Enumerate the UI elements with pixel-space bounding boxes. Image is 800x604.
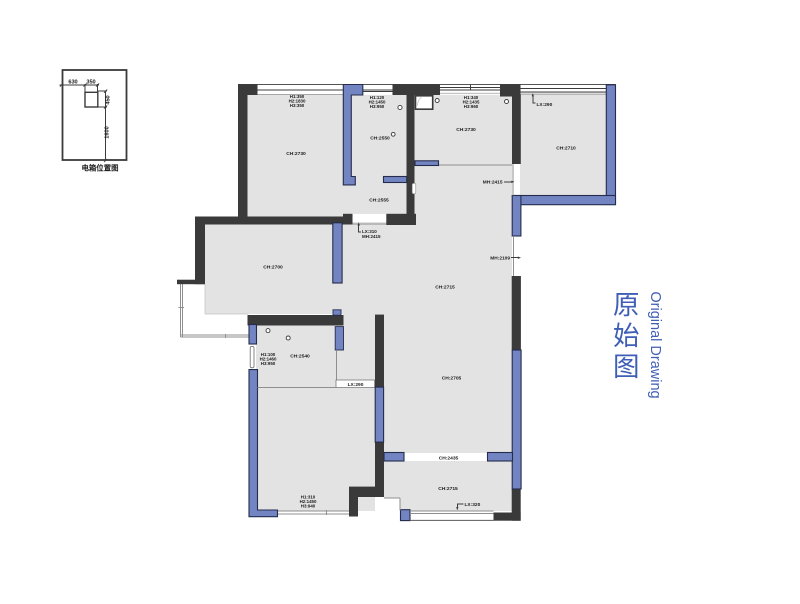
- svg-text:LX:320: LX:320: [465, 502, 481, 508]
- svg-text:LX:290: LX:290: [537, 102, 553, 108]
- svg-text:MH:2109: MH:2109: [490, 256, 510, 262]
- svg-text:CH:2555: CH:2555: [369, 198, 389, 204]
- svg-text:H3:350: H3:350: [290, 103, 305, 108]
- svg-text:原: 原: [613, 290, 640, 320]
- svg-text:Original Drawing: Original Drawing: [647, 291, 663, 398]
- svg-text:始: 始: [613, 321, 640, 351]
- svg-text:CH:2730: CH:2730: [456, 127, 476, 133]
- svg-text:图: 图: [613, 352, 640, 382]
- svg-text:H3:950: H3:950: [261, 361, 276, 366]
- svg-text:CH:2550: CH:2550: [370, 136, 390, 142]
- svg-text:350: 350: [86, 80, 95, 86]
- svg-text:CH:2715: CH:2715: [435, 285, 455, 291]
- svg-text:CH:2540: CH:2540: [290, 354, 310, 360]
- svg-text:MH:2415: MH:2415: [362, 234, 381, 239]
- svg-text:LX:290: LX:290: [348, 382, 364, 388]
- svg-text:H3:950: H3:950: [370, 104, 385, 109]
- svg-text:450: 450: [106, 95, 112, 104]
- svg-text:H3:960: H3:960: [464, 104, 479, 109]
- svg-text:630: 630: [68, 80, 77, 86]
- svg-text:CH:2435: CH:2435: [439, 456, 459, 462]
- svg-text:H3:940: H3:940: [301, 504, 316, 509]
- svg-text:CH:2705: CH:2705: [442, 376, 462, 382]
- svg-text:CH:2715: CH:2715: [438, 486, 458, 492]
- svg-text:CH:2730: CH:2730: [286, 151, 306, 157]
- svg-text:CH:2710: CH:2710: [556, 146, 576, 152]
- svg-text:CH:2700: CH:2700: [263, 265, 283, 271]
- svg-text:MH:2415: MH:2415: [483, 180, 503, 186]
- svg-text:1600: 1600: [105, 126, 111, 138]
- svg-text:电箱位置图: 电箱位置图: [82, 164, 119, 173]
